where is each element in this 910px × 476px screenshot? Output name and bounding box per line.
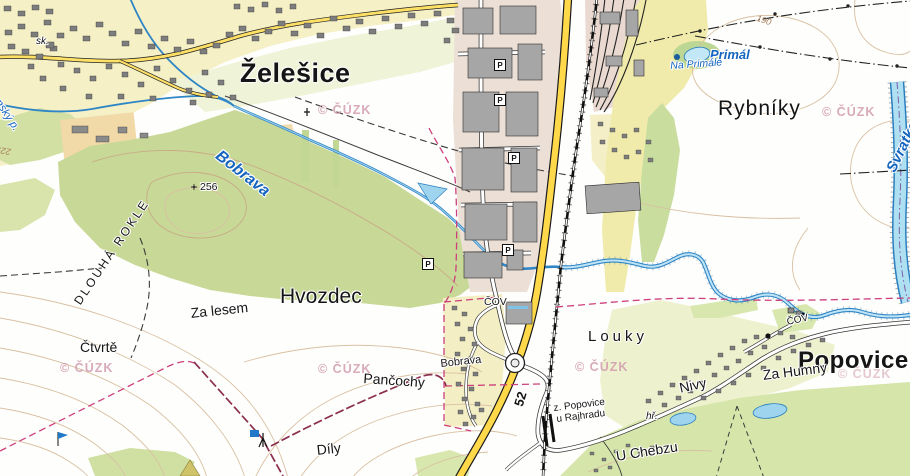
parking-icon: P [502,244,514,256]
copyright-watermark: © ČÚZK [822,106,875,119]
copyright-watermark: © ČÚZK [318,104,371,117]
church-dot-icon [765,333,770,338]
district-label-hvozdec: Hvozdec [280,286,362,307]
copyright-watermark: © ČÚZK [838,368,891,381]
district-label-ctvrte: Čtvrtě [80,340,117,354]
playground-label: hř. [646,412,658,422]
parking-icon: P [494,59,506,71]
parking-icon: P [508,152,520,164]
parking-icon: P [422,258,434,270]
cov-label-center: ČOV [484,297,507,308]
school-label: sk. [36,37,49,47]
copyright-watermark: © ČÚZK [575,361,628,374]
contour-label-225: 225 [0,145,12,156]
district-label-louky: Louky [588,329,648,344]
map-canvas[interactable] [0,0,910,476]
district-label-dily: Díly [316,440,341,456]
copyright-watermark: © ČÚZK [318,363,371,376]
church-cross-icon [304,108,310,116]
spring-flag-icon [58,432,68,446]
town-label-zelesice: Želešice [240,60,351,87]
topographic-map: P P P P P Želešice Popovice Hvozdec Rybn… [0,0,910,476]
district-label-rybniky: Rybníky [718,98,801,119]
antenna-mast-icon [250,430,267,447]
district-label-pancochy: Pančochy [363,371,425,389]
copyright-watermark: © ČÚZK [60,362,113,375]
elevation-label-256: 256 [200,182,218,193]
parking-icon: P [494,94,506,106]
